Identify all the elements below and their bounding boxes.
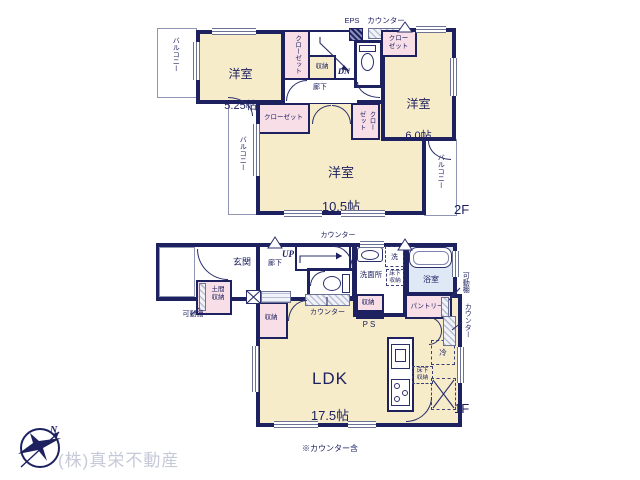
window bbox=[212, 28, 256, 35]
window bbox=[284, 210, 322, 217]
underfloor-label: 床下 収納 bbox=[389, 271, 401, 285]
shelf-hatch bbox=[441, 297, 449, 317]
eps-shaft bbox=[349, 28, 363, 41]
grate bbox=[261, 291, 291, 303]
bathroom-label: 浴室 bbox=[409, 275, 453, 284]
north-arrow-icon bbox=[53, 432, 60, 439]
closet-105-v: クローゼット bbox=[351, 103, 380, 140]
window bbox=[252, 346, 259, 392]
shelf-right-label: 可動棚 bbox=[461, 272, 469, 293]
company-name: (株)真栄不動産 bbox=[58, 446, 179, 471]
closet-105-h: クローゼット bbox=[258, 103, 310, 134]
hallway-1f-label: 廊下 bbox=[260, 260, 290, 268]
porch bbox=[159, 247, 195, 297]
balcony-label: バルコニー bbox=[171, 37, 179, 72]
window bbox=[416, 26, 446, 33]
closet-label: クローゼット bbox=[260, 114, 307, 122]
storage-ldk-label: 収納 bbox=[258, 314, 284, 322]
burner bbox=[394, 396, 400, 402]
stairs-down-label: DN bbox=[332, 66, 356, 76]
cupboard-space bbox=[431, 378, 456, 410]
hallway-2f-label: 廊下 bbox=[305, 84, 335, 92]
burner bbox=[394, 383, 400, 389]
counter-right bbox=[443, 316, 456, 346]
closet-60: クロー ゼット bbox=[381, 30, 417, 57]
closet-label: クロー ゼット bbox=[383, 35, 414, 50]
laundry-label: 洗 bbox=[391, 252, 398, 262]
ps-shaft bbox=[356, 312, 384, 319]
counter-mid bbox=[305, 294, 350, 306]
floor2-label: 2F bbox=[454, 202, 484, 217]
closet-label: クローゼット bbox=[356, 109, 376, 133]
closet-525: クローゼット bbox=[283, 30, 310, 80]
kitchen-sink-basin bbox=[395, 349, 406, 362]
bathtub-inner bbox=[413, 251, 449, 265]
compass-north-label: N bbox=[49, 425, 58, 436]
counter-2f-label: カウンター bbox=[362, 17, 410, 26]
shelf-hatch bbox=[199, 283, 206, 311]
stairs-up-label: UP bbox=[277, 249, 299, 260]
entrance-label: 玄関 bbox=[224, 257, 260, 268]
bathtub bbox=[409, 247, 452, 268]
closet-label: クローゼット bbox=[293, 35, 301, 74]
doma-storage: 土間 収納 bbox=[196, 280, 232, 315]
counter-top-1f-label: カウンター bbox=[316, 232, 360, 240]
room-105-label: 洋室 10.5帖 bbox=[291, 146, 391, 233]
underfloor-label: 床下 収納 bbox=[417, 368, 429, 382]
window bbox=[360, 241, 384, 248]
ldk-label: LDK 17.5帖 ※カウンター含 bbox=[270, 350, 390, 472]
counter-right-label: カウンター bbox=[463, 303, 471, 338]
toilet-bowl bbox=[361, 53, 374, 71]
window bbox=[452, 251, 459, 277]
shoe-box bbox=[246, 290, 261, 304]
window bbox=[193, 42, 200, 80]
burner bbox=[402, 390, 408, 396]
window bbox=[457, 347, 464, 383]
window bbox=[341, 210, 385, 217]
counter-mid-label: カウンター bbox=[305, 309, 350, 317]
washbasin-bowl bbox=[361, 250, 379, 260]
laundry-space: 洗 bbox=[385, 246, 404, 267]
door-arc bbox=[357, 82, 380, 98]
window bbox=[348, 421, 376, 428]
toilet-bowl bbox=[323, 276, 341, 291]
window bbox=[274, 421, 318, 428]
floor-plan: バルコニー バルコニー バルコニー 洋室 5.25帖 洋室 6.0帖 洋室 10… bbox=[0, 0, 640, 480]
window bbox=[253, 124, 260, 176]
ps-label: PS bbox=[358, 320, 382, 329]
window bbox=[450, 58, 457, 96]
doma-label: 土間 収納 bbox=[207, 286, 229, 301]
shelf-left-label: 可動棚 bbox=[176, 311, 210, 319]
bird-icon bbox=[18, 433, 61, 461]
underfloor-storage-kitchen: 床下 収納 bbox=[412, 366, 433, 384]
washroom-label: 洗面所 bbox=[353, 271, 389, 280]
toilet-tank bbox=[342, 274, 350, 293]
balcony-label: バルコニー bbox=[238, 136, 246, 171]
balcony-2f-top-left: バルコニー bbox=[157, 28, 197, 98]
toilet-tank bbox=[359, 45, 376, 52]
storage-mid-label: 収納 bbox=[356, 299, 380, 307]
floor1-label: 1F bbox=[454, 401, 484, 416]
underfloor-storage-wash: 床下 収納 bbox=[386, 269, 404, 286]
fridge-label: 冷 bbox=[439, 347, 447, 358]
